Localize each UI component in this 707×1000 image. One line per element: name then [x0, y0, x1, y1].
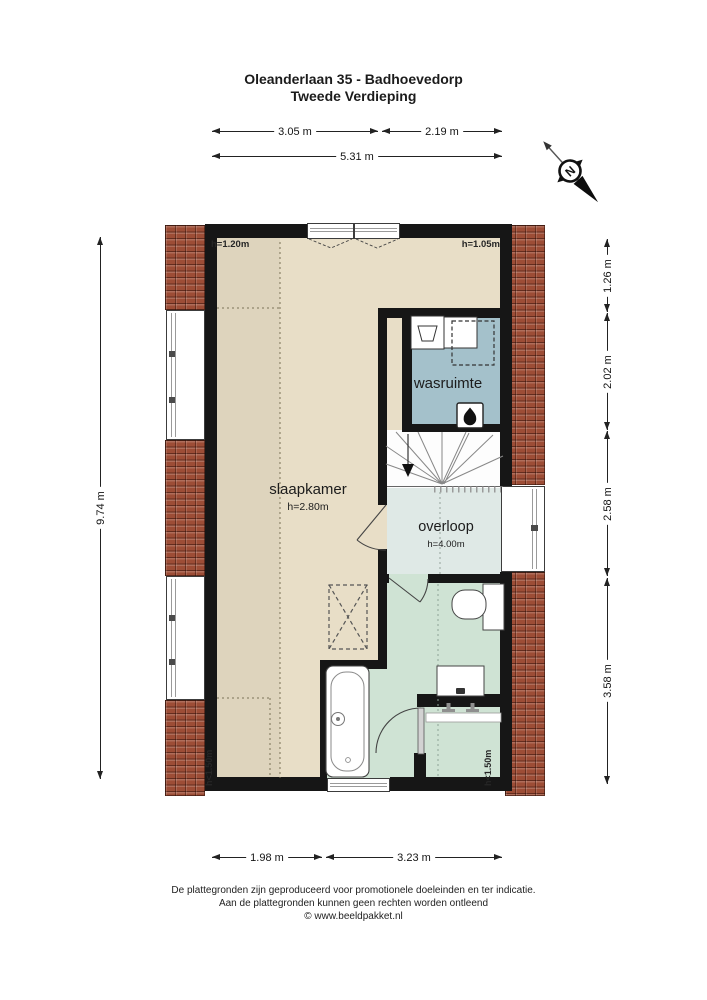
dimension-label: 3.23 m — [393, 852, 435, 864]
dimension-label: 2.02 m — [602, 351, 614, 393]
arrow-right-icon — [314, 854, 322, 860]
arrow-left-icon — [326, 854, 334, 860]
arrow-right-icon — [494, 153, 502, 159]
arrow-up-icon — [604, 239, 610, 247]
page-title-line2: Tweede Verdieping — [0, 88, 707, 104]
page-title-line1: Oleanderlaan 35 - Badhoevedorp — [0, 71, 707, 87]
wall — [402, 308, 412, 432]
height-note-top-right: h=1.05m — [452, 239, 500, 250]
window-joint — [169, 351, 175, 357]
wall — [390, 777, 512, 791]
door-opening — [389, 574, 428, 583]
dimension-label: 5.31 m — [336, 151, 378, 163]
wall — [205, 224, 307, 238]
window-bottom — [327, 778, 390, 792]
dimension-label: 1.98 m — [246, 852, 288, 864]
height-note-bottom-left: h<1.50m — [204, 750, 214, 786]
window-top — [307, 223, 400, 239]
footer-copyright: © www.beeldpakket.nl — [0, 911, 707, 922]
window-glass — [330, 786, 387, 787]
floorplan-page: Oleanderlaan 35 - Badhoevedorp Tweede Ve… — [0, 0, 707, 1000]
stairwell — [386, 430, 504, 488]
window-left-lower — [166, 576, 205, 700]
room-height-overloop: h=4.00m — [394, 539, 498, 550]
footer-disclaimer-line1: De plattegronden zijn geproduceerd voor … — [0, 885, 707, 896]
arrow-right-icon — [494, 854, 502, 860]
wall — [414, 753, 426, 791]
wall — [417, 694, 512, 707]
window-right — [501, 486, 545, 572]
room-label-overloop: overloop — [394, 519, 498, 535]
roof-section — [165, 440, 205, 576]
window-glass — [175, 579, 176, 697]
wall — [378, 574, 389, 583]
room-bathroom — [386, 582, 504, 778]
wall — [500, 224, 512, 486]
window-joint — [169, 615, 175, 621]
dimension-right-3: 2.58 m — [602, 431, 613, 576]
dimension-label: 3.58 m — [602, 660, 614, 702]
dimension-top-left: 3.05 m — [212, 126, 378, 137]
arrow-right-icon — [370, 128, 378, 134]
window-mullion — [353, 224, 355, 238]
dimension-right-1: 1.26 m — [602, 239, 613, 312]
dimension-label: 3.05 m — [274, 126, 316, 138]
arrow-right-icon — [494, 128, 502, 134]
dimension-label: 2.19 m — [421, 126, 463, 138]
dimension-top-right: 2.19 m — [382, 126, 502, 137]
window-joint — [169, 397, 175, 403]
dimension-label: 1.26 m — [602, 255, 614, 297]
room-label-wasruimte: wasruimte — [396, 375, 500, 392]
window-joint — [169, 659, 175, 665]
dimension-right-2: 2.02 m — [602, 313, 613, 430]
wall — [205, 777, 327, 791]
height-note-top-left: h=1.20m — [211, 239, 249, 250]
window-glass — [175, 313, 176, 437]
arrow-left-icon — [212, 128, 220, 134]
arrow-up-icon — [604, 578, 610, 586]
window-glass — [171, 579, 172, 697]
arrow-left-icon — [212, 854, 220, 860]
window-glass — [171, 313, 172, 437]
wall — [320, 660, 327, 791]
dimension-label: 2.58 m — [602, 483, 614, 525]
arrow-up-icon — [604, 313, 610, 321]
arrow-up-icon — [604, 431, 610, 439]
arrow-down-icon — [604, 304, 610, 312]
footer-disclaimer-line2: Aan de plattegronden kunnen geen rechten… — [0, 898, 707, 909]
arrow-down-icon — [604, 568, 610, 576]
wall — [378, 308, 512, 318]
room-bathroom-tub-area — [326, 666, 386, 778]
room-height-slaapkamer: h=2.80m — [233, 501, 383, 513]
arrow-up-icon — [97, 237, 103, 245]
window-joint — [531, 525, 538, 531]
height-note-bottom-right: h<1.50m — [483, 750, 493, 786]
compass-north-arrow-icon: N — [533, 131, 607, 217]
arrow-down-icon — [604, 776, 610, 784]
room-wasruimte — [410, 316, 502, 426]
arrow-left-icon — [212, 153, 220, 159]
dimension-label: 9.74 m — [95, 487, 107, 529]
dimension-bottom-left: 1.98 m — [212, 852, 322, 863]
dimension-right-4: 3.58 m — [602, 578, 613, 784]
dimension-top-total: 5.31 m — [212, 151, 502, 162]
wall — [320, 660, 387, 669]
wall — [400, 224, 512, 238]
wall — [500, 572, 512, 791]
room-label-slaapkamer: slaapkamer — [233, 481, 383, 498]
arrow-down-icon — [97, 771, 103, 779]
roof-section — [165, 700, 205, 796]
window-glass — [330, 783, 387, 784]
arrow-down-icon — [604, 422, 610, 430]
dimension-left-total: 9.74 m — [95, 237, 106, 779]
window-left-upper — [166, 310, 205, 440]
wall — [428, 574, 512, 583]
south-blade — [574, 176, 603, 206]
arrow-left-icon — [382, 128, 390, 134]
wall — [205, 224, 217, 791]
wall — [402, 424, 512, 432]
dimension-bottom-right: 3.23 m — [326, 852, 502, 863]
roof-section — [165, 225, 205, 310]
